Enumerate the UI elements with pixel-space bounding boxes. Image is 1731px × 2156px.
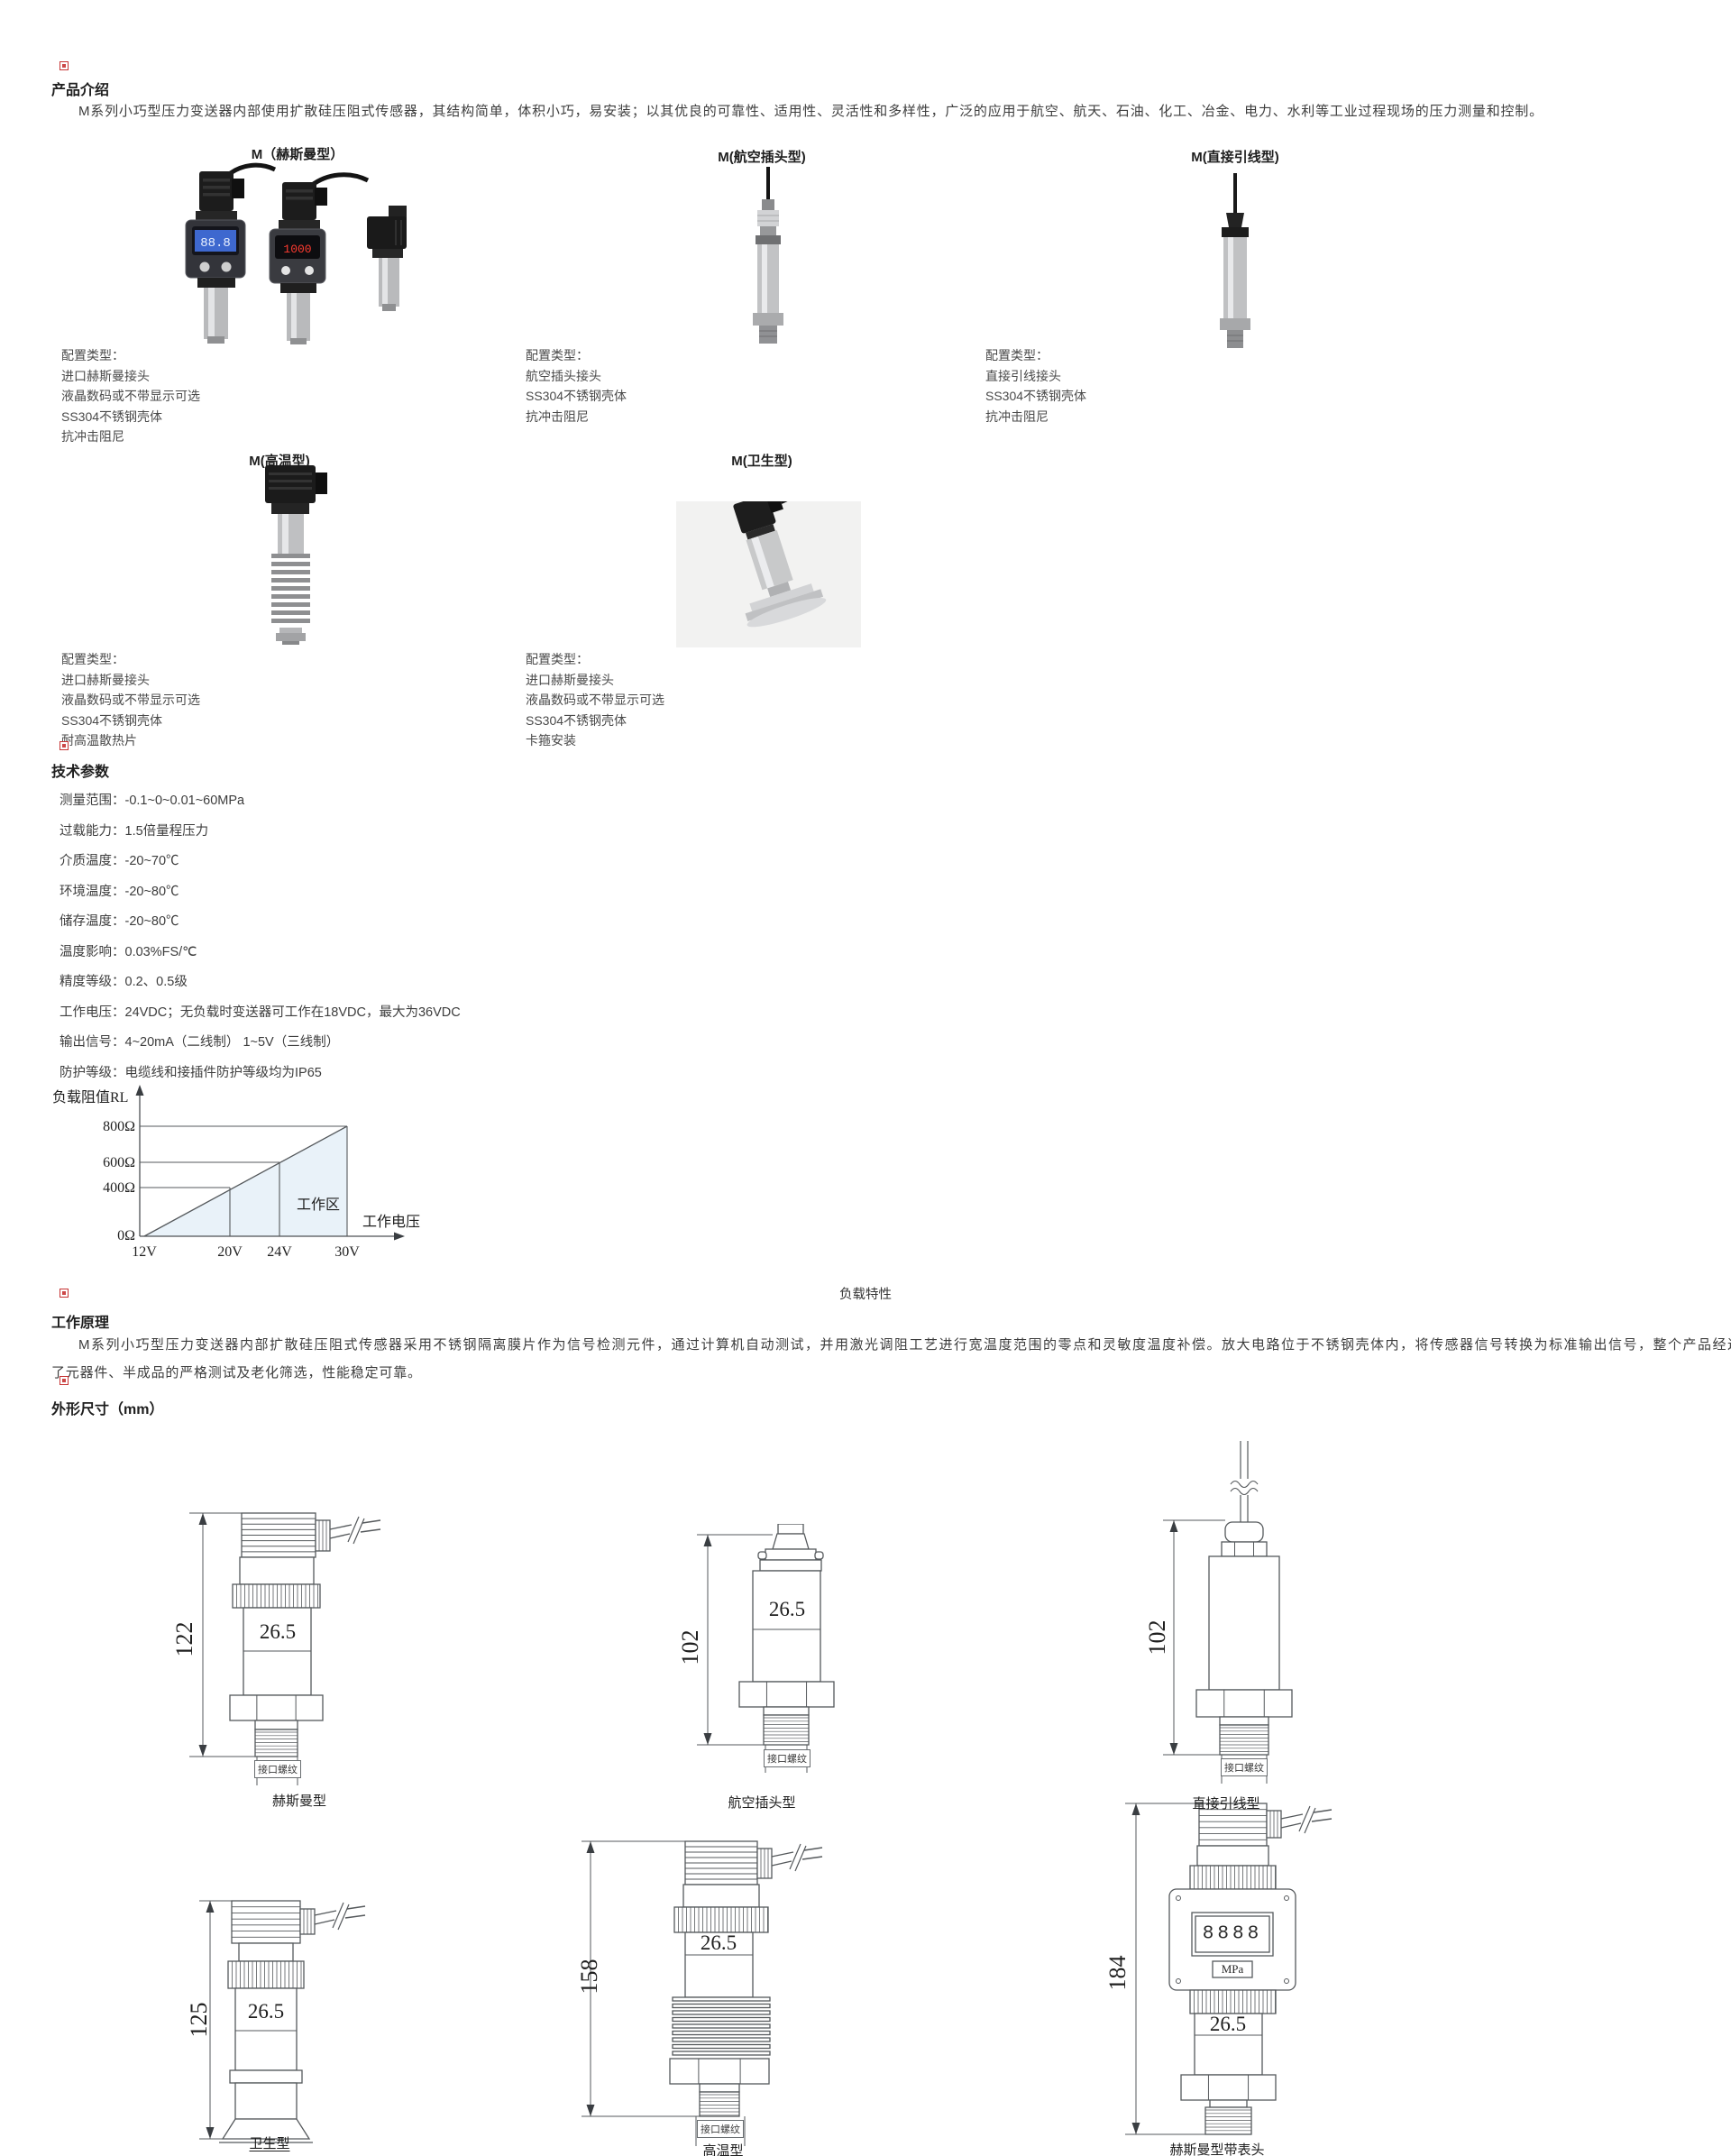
x-tick-24v: 24V [267, 1244, 292, 1260]
x-tick-30v: 30V [334, 1244, 360, 1260]
section-marker-icon [60, 1376, 69, 1385]
principle-line2: 了元器件、半成品的严格测试及老化筛选，性能稳定可靠。 [51, 1362, 422, 1381]
product-title-direct-lead: M(直接引线型) [1191, 147, 1279, 166]
gauge-display-unit: MPa [1222, 1962, 1244, 1977]
config-item: 抗冲击阻尼 [985, 407, 1086, 427]
principle-line1: M系列小巧型压力变送器内部扩散硅压阻式传感器采用不锈钢隔离膜片作为信号检测元件，… [78, 1335, 1731, 1353]
chart-y-axis-label: 负载阻值RL [52, 1089, 128, 1106]
config-list-aviation: 配置类型：航空插头接头SS304不锈钢壳体抗冲击阻尼 [526, 345, 627, 427]
config-item: 直接引线接头 [985, 366, 1086, 387]
config-item: 耐高温散热片 [61, 730, 200, 751]
config-list-sanitary: 配置类型：进口赫斯曼接头液晶数码或不带显示可选SS304不锈钢壳体卡箍安装 [526, 649, 664, 751]
config-item: SS304不锈钢壳体 [985, 386, 1086, 407]
config-item: 液晶数码或不带显示可选 [61, 690, 200, 711]
tech-param-item: 介质温度：-20~70℃ [60, 847, 461, 877]
x-tick-20v: 20V [217, 1244, 243, 1260]
drawing-direct-lead [1131, 1441, 1366, 1794]
load-characteristic-chart: 负载阻值RL 800Ω 600Ω 400Ω 0Ω 12V 20V 24V 30V… [45, 1082, 442, 1273]
config-item: 液晶数码或不带显示可选 [61, 386, 200, 407]
tech-param-item: 输出信号：4~20mA（二线制） 1~5V（三线制） [60, 1028, 461, 1059]
section-title-dimensions: 外形尺寸（mm） [51, 1397, 163, 1418]
config-item: SS304不锈钢壳体 [61, 711, 200, 731]
config-item: 进口赫斯曼接头 [61, 366, 200, 387]
drawing-high-temp [577, 1835, 829, 2146]
photo-hirschmann-group: 88.8 1000 [165, 161, 422, 345]
config-list-direct-lead: 配置类型：直接引线接头SS304不锈钢壳体抗冲击阻尼 [985, 345, 1086, 427]
working-area-label: 工作区 [297, 1197, 340, 1213]
photo-sanitary [676, 501, 861, 647]
section-title-tech: 技术参数 [51, 759, 109, 781]
port-thread-label: 接口螺纹 [697, 2120, 744, 2138]
body-dimension: 26.5 [1210, 2013, 1246, 2036]
x-axis-arrow [394, 1233, 405, 1241]
config-list-hirschmann: 配置类型：进口赫斯曼接头液晶数码或不带显示可选SS304不锈钢壳体抗冲击阻尼 [61, 345, 200, 447]
config-item: 液晶数码或不带显示可选 [526, 690, 664, 711]
photo-direct-lead [1199, 173, 1271, 353]
section-marker-icon [60, 61, 69, 70]
tech-param-item: 环境温度：-20~80℃ [60, 877, 461, 908]
config-item: 配置类型： [526, 649, 664, 670]
config-item: 配置类型： [985, 345, 1086, 366]
config-list-high-temp: 配置类型：进口赫斯曼接头液晶数码或不带显示可选SS304不锈钢壳体耐高温散热片 [61, 649, 200, 751]
drawing-hirschmann [171, 1506, 442, 1790]
config-item: 抗冲击阻尼 [61, 427, 200, 447]
photo-high-temp [242, 460, 345, 645]
tech-param-item: 测量范围：-0.1~0~0.01~60MPa [60, 786, 461, 817]
config-item: 抗冲击阻尼 [526, 407, 627, 427]
tech-param-item: 温度影响：0.03%FS/℃ [60, 938, 461, 968]
section-title-principle: 工作原理 [51, 1310, 109, 1332]
drawing-caption: 航空插头型 [728, 1793, 795, 1812]
y-tick-800: 800Ω [103, 1119, 135, 1134]
height-dimension: 184 [1104, 1956, 1131, 1991]
height-dimension: 122 [171, 1622, 198, 1657]
body-dimension: 26.5 [769, 1598, 805, 1621]
chart-x-axis-label: 工作电压 [362, 1214, 420, 1230]
tech-param-item: 过载能力：1.5倍量程压力 [60, 817, 461, 848]
photo-aviation-plug [732, 167, 804, 347]
config-item: 进口赫斯曼接头 [526, 670, 664, 691]
body-dimension: 26.5 [260, 1620, 296, 1644]
config-item: 进口赫斯曼接头 [61, 670, 200, 691]
port-thread-label: 接口螺纹 [764, 1749, 811, 1767]
x-tick-12v: 12V [132, 1244, 157, 1260]
config-item: 配置类型： [61, 649, 200, 670]
body-dimension: 26.5 [701, 1931, 737, 1955]
tech-param-item: 储存温度：-20~80℃ [60, 907, 461, 938]
height-dimension: 102 [677, 1630, 704, 1665]
config-item: 配置类型： [526, 345, 627, 366]
port-thread-label: 接口螺纹 [254, 1760, 301, 1778]
section-marker-icon [60, 1289, 69, 1298]
gauge-display-digits: 8888 [1203, 1924, 1262, 1945]
led-display-value: 1000 [283, 243, 311, 256]
intro-paragraph: M系列小巧型压力变送器内部使用扩散硅压阻式传感器，其结构简单，体积小巧，易安装；… [78, 101, 1543, 120]
y-tick-600: 600Ω [103, 1155, 135, 1170]
config-item: 卡箍安装 [526, 730, 664, 751]
tech-param-item: 工作电压：24VDC；无负载时变送器可工作在18VDC，最大为36VDC [60, 998, 461, 1029]
height-dimension: 125 [186, 2003, 213, 2038]
drawing-caption: 卫生型 [249, 2133, 289, 2152]
lcd-display-value: 88.8 [200, 236, 231, 251]
height-dimension: 102 [1144, 1620, 1171, 1656]
config-item: 配置类型： [61, 345, 200, 366]
y-tick-0: 0Ω [117, 1228, 135, 1243]
tech-param-list: 测量范围：-0.1~0~0.01~60MPa过载能力：1.5倍量程压力介质温度：… [60, 786, 461, 1088]
section-title-intro: 产品介绍 [51, 78, 109, 99]
drawing-caption: 直接引线型 [1192, 1794, 1259, 1812]
drawing-caption: 高温型 [702, 2141, 743, 2156]
section-marker-icon [60, 741, 69, 750]
config-item: SS304不锈钢壳体 [61, 407, 200, 427]
drawing-caption: 赫斯曼型带表头 [1169, 2140, 1264, 2156]
height-dimension: 158 [576, 1959, 603, 1995]
tech-param-item: 精度等级：0.2、0.5级 [60, 968, 461, 998]
config-item: 航空插头接头 [526, 366, 627, 387]
product-title-aviation: M(航空插头型) [718, 147, 806, 166]
product-title-sanitary: M(卫生型) [731, 451, 792, 470]
body-dimension: 26.5 [248, 2000, 284, 2023]
config-item: SS304不锈钢壳体 [526, 386, 627, 407]
product-document-page: 产品介绍 M系列小巧型压力变送器内部使用扩散硅压阻式传感器，其结构简单，体积小巧… [0, 0, 1731, 2156]
config-item: SS304不锈钢壳体 [526, 711, 664, 731]
y-tick-400: 400Ω [103, 1180, 135, 1196]
drawing-caption: 赫斯曼型 [272, 1791, 326, 1810]
chart-caption: 负载特性 [839, 1284, 892, 1303]
y-axis-arrow [136, 1085, 144, 1096]
port-thread-label: 接口螺纹 [1221, 1758, 1268, 1776]
